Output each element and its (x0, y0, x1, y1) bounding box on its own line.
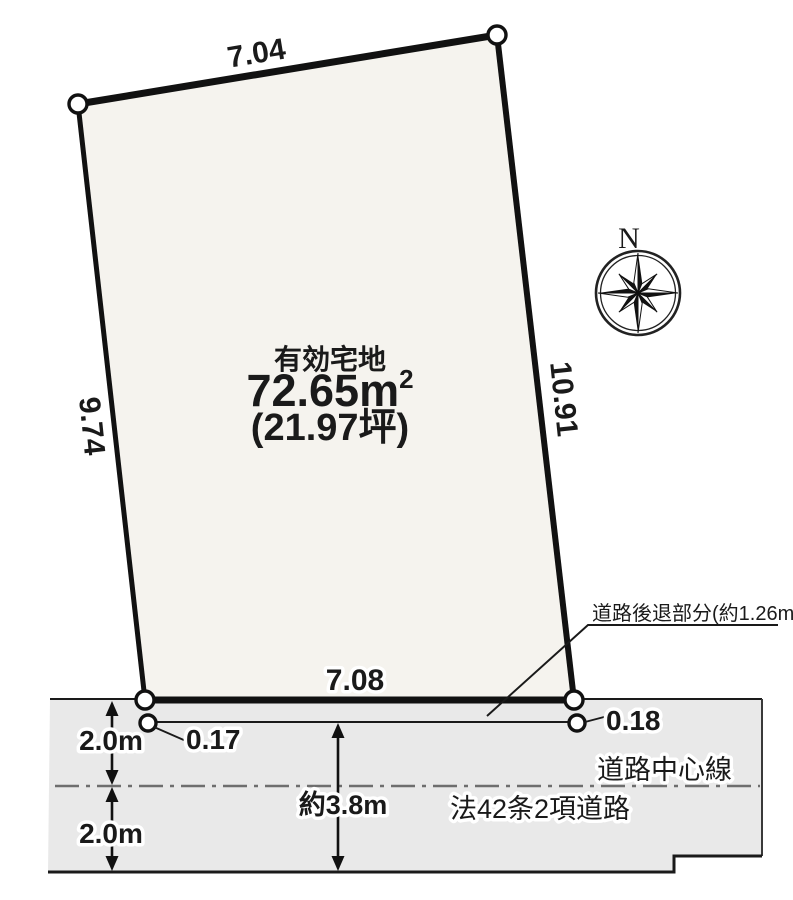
site-plan-page: 7.04 9.74 10.91 7.08 有効宅地 72.65m2 (21.97… (0, 0, 793, 900)
vertex-bottom-left (136, 691, 154, 709)
vertex-top-right (488, 26, 506, 44)
road-total-width: 約3.8m (299, 789, 388, 820)
road-type-label: 法42条2項道路 (450, 794, 630, 824)
setback-right-offset: 0.18 (606, 705, 661, 736)
road-upper-width: 2.0m (79, 725, 143, 756)
dim-right: 10.91 (543, 360, 584, 438)
dim-left: 9.74 (72, 395, 111, 457)
road-centerline-label: 道路中心線 (597, 755, 732, 785)
setback-left-offset: 0.17 (186, 724, 241, 755)
plot-area-tsubo: (21.97坪) (251, 407, 409, 449)
road-lower-width: 2.0m (79, 818, 143, 849)
setback-label: 道路後退部分(約1.26m2) (592, 601, 793, 625)
vertex-top-left (69, 95, 87, 113)
site-plan-svg: 7.04 9.74 10.91 7.08 有効宅地 72.65m2 (21.97… (0, 0, 793, 900)
dim-bottom: 7.08 (326, 664, 384, 697)
compass-rose: N (596, 222, 680, 335)
compass-star (598, 253, 678, 333)
vertex-setback-right (569, 715, 585, 731)
vertex-bottom-right (565, 691, 583, 709)
